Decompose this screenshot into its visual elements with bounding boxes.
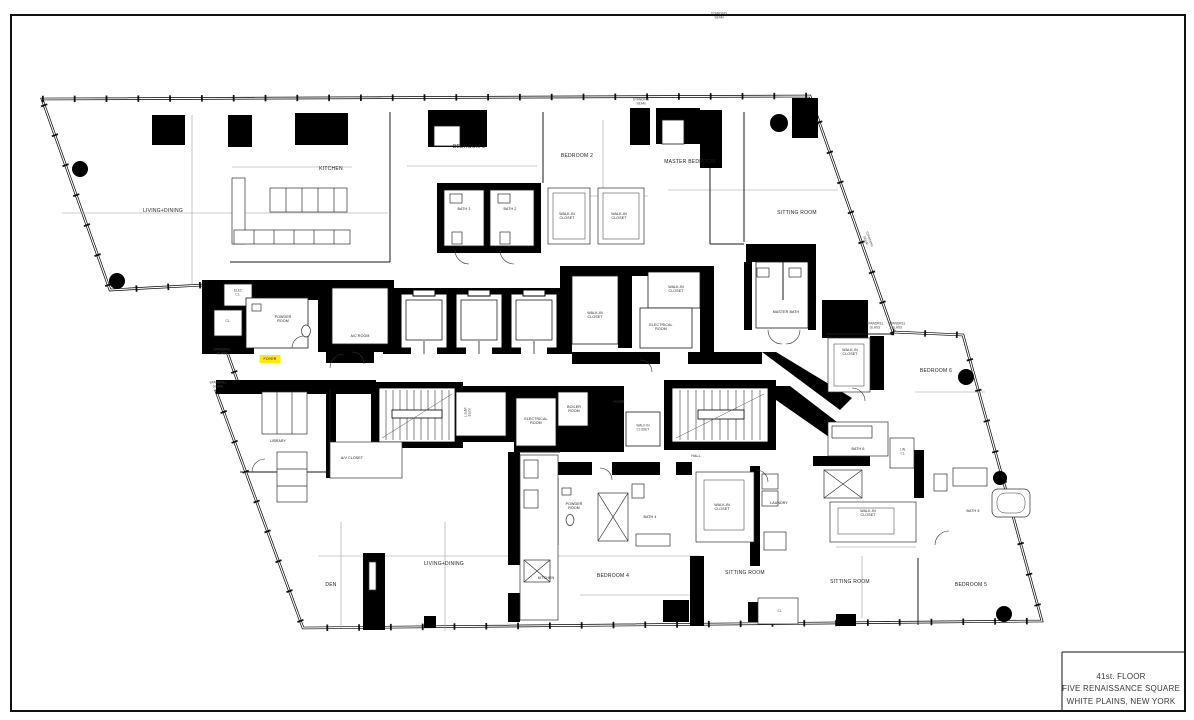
title-block-building: FIVE RENAISSANCE SQUARE [1062, 683, 1180, 695]
stair-west [379, 388, 455, 442]
title-block-floor: 41st. FLOOR [1062, 671, 1180, 683]
title-block-city: WHITE PLAINS, NEW YORK [1062, 696, 1180, 708]
elevator-cab [401, 290, 447, 354]
elevator-cab [456, 290, 502, 354]
stair-east [672, 388, 768, 442]
elevator-cab [511, 290, 557, 354]
floor-plan-drawing [0, 0, 1194, 720]
title-block: 41st. FLOOR FIVE RENAISSANCE SQUARE WHIT… [1062, 671, 1180, 708]
elevator-bank [401, 290, 557, 354]
drawing-sheet: LIVING+DININGKITCHENBEDROOM 3BATH 3BATH … [0, 0, 1194, 720]
